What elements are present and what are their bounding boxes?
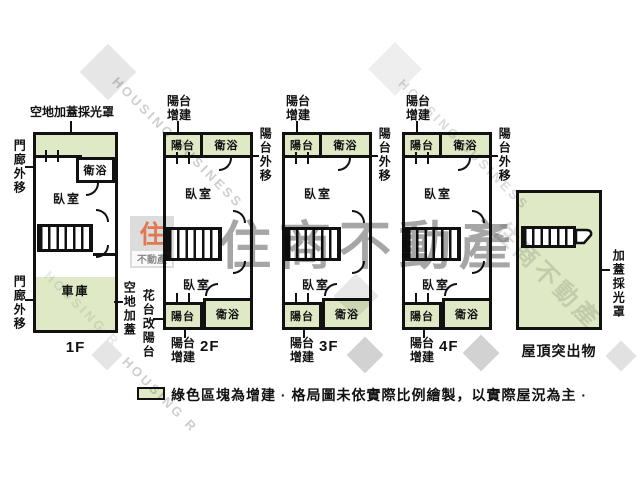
4f-balcony-bottom-label: 陽台	[410, 308, 434, 324]
3f-balcony-top-label: 陽台	[290, 137, 314, 153]
2f-bath-top-label: 衛浴	[215, 137, 239, 153]
annotation-tick	[250, 155, 259, 157]
floorplan-4f: 陽台 衛浴 臥室 臥室 陽台 衛浴	[402, 132, 492, 330]
stairs-direction-icon	[575, 227, 593, 247]
legend-text: 綠色區塊為增建 · 格局圖未依實際比例繪製，以實際屋況為主 ·	[171, 385, 587, 405]
annotation-tick	[70, 121, 72, 132]
door-arc-icon	[96, 209, 109, 222]
2f-balcony-top: 陽台	[166, 135, 203, 158]
4f-annotation-right: 陽台外移	[497, 127, 510, 183]
watermark-tile-icon	[605, 340, 636, 371]
roof-label: 屋頂突出物	[516, 341, 602, 361]
3f-window-tick	[307, 293, 309, 305]
watermark-tile-icon	[368, 42, 422, 96]
annotation-tick	[25, 299, 34, 301]
annotation-tick	[296, 121, 298, 132]
4f-bath-bottom: 衛浴	[442, 298, 489, 327]
3f-bath-bottom-label: 衛浴	[335, 306, 359, 322]
1f-window-tick	[57, 150, 59, 162]
2f-balcony-bottom: 陽台	[166, 302, 203, 327]
4f-window-tick	[415, 293, 417, 305]
door-arc-icon	[472, 210, 485, 223]
4f-balcony-top: 陽台	[405, 135, 442, 158]
2f-bath-bottom: 衛浴	[203, 298, 250, 327]
1f-bath-room: 衛浴	[76, 157, 115, 183]
4f-bath-top-label: 衛浴	[454, 137, 478, 153]
4f-stairs	[405, 227, 461, 261]
annotation-tick	[177, 121, 179, 132]
floorplan-1f: 衛浴 臥室 車庫	[33, 132, 118, 333]
annotation-tick	[184, 329, 186, 338]
3f-annotation-top: 陽台增建	[286, 95, 313, 123]
door-arc-icon	[458, 158, 471, 171]
4f-annotation-top: 陽台增建	[406, 95, 433, 123]
3f-balcony-bottom: 陽台	[285, 302, 322, 327]
4f-floor-label: 4F	[439, 338, 459, 355]
1f-garage-label: 車庫	[36, 282, 115, 299]
3f-annotation-right: 陽台外移	[377, 127, 390, 183]
2f-bath-top: 衛浴	[203, 135, 250, 158]
4f-window-tick	[415, 152, 417, 164]
roof-annotation-right: 加蓋採光罩	[611, 249, 624, 319]
3f-annotation-bottom: 陽台增建	[290, 337, 317, 365]
1f-stairs	[37, 224, 93, 252]
2f-window-tick	[176, 152, 178, 164]
3f-window-tick	[295, 293, 297, 305]
1f-annotation-right: 空地加蓋	[122, 281, 135, 337]
1f-bath-label: 衛浴	[84, 162, 108, 178]
2f-balcony-bottom-label: 陽台	[171, 308, 195, 324]
2f-balcony-top-label: 陽台	[171, 137, 195, 153]
4f-bath-bottom-label: 衛浴	[455, 306, 479, 322]
legend-swatch	[137, 387, 165, 400]
door-arc-icon	[352, 261, 365, 274]
floorplan-roof	[516, 190, 602, 330]
watermark-tile-icon	[463, 335, 500, 372]
2f-annotation-bottom: 陽台增建	[171, 337, 198, 365]
door-arc-icon	[352, 210, 365, 223]
3f-bath-bottom: 衛浴	[322, 298, 369, 327]
annotation-tick	[114, 301, 123, 303]
2f-stairs	[166, 227, 222, 261]
2f-bath-bottom-label: 衛浴	[216, 306, 240, 322]
door-arc-icon	[472, 261, 485, 274]
annotation-tick	[489, 155, 498, 157]
watermark-tile-icon	[347, 337, 384, 374]
4f-bedroom-top-label: 臥室	[405, 185, 471, 202]
annotation-tick	[601, 269, 610, 271]
2f-window-tick	[176, 293, 178, 305]
roof-stairs	[521, 226, 576, 248]
2f-floor-label: 2F	[200, 338, 220, 355]
door-arc-icon	[338, 158, 351, 171]
3f-window-tick	[307, 152, 309, 164]
4f-bath-top: 衛浴	[442, 135, 489, 158]
annotation-tick	[369, 155, 378, 157]
3f-bedroom-top-label: 臥室	[285, 185, 351, 202]
1f-annotation-left-bottom: 門廊外移	[12, 275, 25, 331]
3f-bath-top: 衛浴	[322, 135, 369, 158]
3f-window-tick	[295, 152, 297, 164]
annotation-tick	[423, 329, 425, 338]
4f-window-tick	[427, 152, 429, 164]
2f-window-tick	[188, 293, 190, 305]
4f-window-tick	[427, 293, 429, 305]
2f-bedroom-bottom-label: 臥室	[166, 276, 228, 293]
1f-floor-label: 1F	[33, 339, 118, 356]
3f-stairs	[285, 227, 341, 261]
door-arc-icon	[233, 210, 246, 223]
4f-balcony-top-label: 陽台	[410, 137, 434, 153]
floorplan-3f: 陽台 衛浴 臥室 臥室 陽台 衛浴	[282, 132, 372, 330]
annotation-tick	[25, 166, 34, 168]
1f-window-tick	[45, 150, 47, 162]
2f-annotation-left: 花台改陽台	[141, 289, 154, 359]
annotation-tick	[303, 329, 305, 338]
1f-annotation-left-top: 門廊外移	[12, 139, 25, 195]
door-arc-icon	[219, 158, 232, 171]
4f-annotation-bottom: 陽台增建	[410, 337, 437, 365]
door-arc-icon	[96, 245, 109, 258]
annotation-tick	[416, 121, 418, 132]
2f-annotation-top: 陽台增建	[167, 95, 194, 123]
4f-bedroom-bottom-label: 臥室	[405, 276, 467, 293]
2f-window-tick	[188, 152, 190, 164]
2f-annotation-right: 陽台外移	[258, 127, 271, 183]
1f-annotation-top: 空地加蓋採光罩	[30, 106, 114, 120]
door-arc-icon	[233, 261, 246, 274]
1f-bedroom-label: 臥室	[36, 190, 98, 207]
3f-balcony-top: 陽台	[285, 135, 322, 158]
3f-bath-top-label: 衛浴	[334, 137, 358, 153]
2f-bedroom-top-label: 臥室	[166, 185, 232, 202]
3f-bedroom-bottom-label: 臥室	[285, 276, 347, 293]
watermark-tile-icon	[80, 44, 137, 101]
floorplan-diagram: 衛浴 臥室 車庫 空地加蓋採光罩 門廊外移 門廊外移 空地加蓋 1F 花台改陽台…	[0, 0, 640, 480]
floorplan-2f: 陽台 衛浴 臥室 臥室 陽台 衛浴	[163, 132, 253, 330]
4f-balcony-bottom: 陽台	[405, 302, 442, 327]
3f-balcony-bottom-label: 陽台	[290, 308, 314, 324]
3f-floor-label: 3F	[319, 338, 339, 355]
